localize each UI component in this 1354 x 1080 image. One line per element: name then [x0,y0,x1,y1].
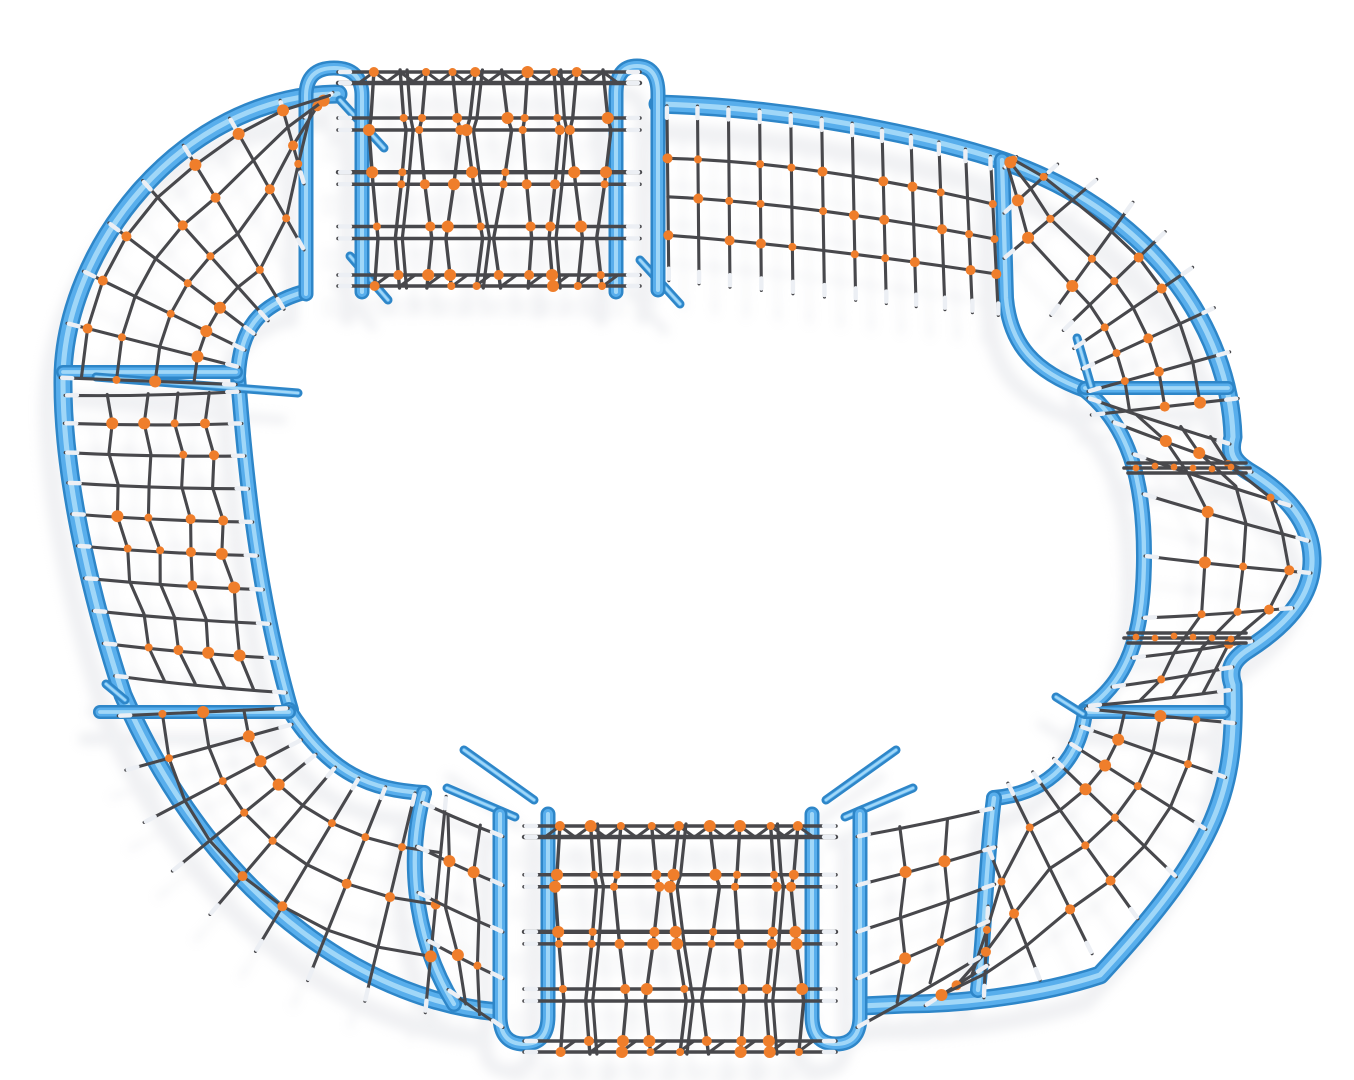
connector-dot [202,647,214,659]
connector-dot [206,252,214,260]
connector-dot [400,114,408,122]
connector-dot [693,194,703,204]
connector-dot [613,871,621,879]
connector-dot [397,180,405,188]
connector-dot [277,901,287,911]
connector-dot [1088,255,1096,263]
ferrule-tip [274,692,284,693]
connector-dot [664,881,676,893]
rope-line [791,113,793,293]
connector-dot [670,926,682,938]
connector-dot [328,819,336,827]
connector-dot [373,222,381,230]
connector-dot [1152,635,1159,642]
connector-dot [602,112,614,124]
connector-dot [938,855,950,867]
connector-dot [770,871,778,879]
connector-dot [369,67,379,77]
ferrule-tip [426,1001,427,1011]
connector-dot [425,221,435,231]
connector-dot [216,548,228,560]
ferrule-tip [983,885,992,888]
connector-dot [597,271,605,279]
ferrule-tip [1147,556,1157,557]
connector-dot [851,250,859,258]
rope-line [555,824,564,1054]
ferrule-tip [1126,204,1132,212]
connector-dot [550,179,560,189]
connector-dot [452,949,464,961]
connector-dot [1228,464,1235,471]
connector-dot [1113,349,1121,357]
ferrule-tip [1090,399,1100,402]
connector-dot [671,938,683,950]
connector-dot [209,450,219,460]
connector-dot [617,1035,629,1047]
connector-dot [620,984,630,994]
connector-dot [789,926,801,938]
connector-dot [442,220,454,232]
connector-dot [425,950,437,962]
ferrule-tip [174,863,182,869]
connector-dot [565,125,575,135]
connector-dot [186,514,196,524]
connector-dot [393,270,403,280]
ferrule-tip [301,172,304,182]
connector-dot [1066,280,1078,292]
connector-dot [184,279,192,287]
connector-dot [556,1047,566,1057]
connector-dot [145,643,153,651]
ferrule-tip [69,324,79,326]
ferrule-tip [1183,268,1191,274]
connector-dot [200,325,212,337]
connector-dot [1239,563,1247,571]
connector-dot [643,1035,655,1047]
connector-dot [452,113,462,123]
connector-dot [589,928,597,936]
ferrule-tip [1219,690,1229,691]
connector-dot [756,160,764,168]
connector-dot [288,140,298,150]
connector-dot [422,269,434,281]
ferrule-tip [246,555,256,556]
ferrule-tip [128,767,138,770]
connector-dot [189,159,201,171]
connector-dot [555,821,565,831]
connector-dot [702,1036,712,1046]
connector-dot [601,180,609,188]
connector-dot [936,989,948,1001]
connector-dot [674,821,684,831]
connector-dot [768,927,778,937]
connector-dot [1171,464,1178,471]
connector-dot [733,871,741,879]
connector-dot [1099,759,1111,771]
connector-dot [214,302,226,314]
connector-dot [173,645,183,655]
connector-dot [553,114,561,122]
connector-dot [1190,634,1197,641]
connector-dot [1192,715,1200,723]
connector-dot [590,871,598,879]
connector-dot [501,168,509,176]
connector-dot [551,869,563,881]
ferrule-tip [859,882,869,885]
ferrule-tip [87,578,97,579]
connector-dot [615,939,625,949]
ferrule-tip [1168,869,1175,876]
connector-dot [418,114,426,122]
connector-dot [881,254,889,262]
connector-dot [1193,447,1205,459]
ferrule-tip [1221,667,1231,669]
connector-dot [796,983,808,995]
connector-dot [466,166,478,178]
connector-dot [1022,232,1034,244]
ferrule-tip [1145,495,1155,498]
connector-dot [1079,783,1091,795]
connector-dot [1106,876,1116,886]
connector-dot [522,66,534,78]
ferrule-tip [280,725,290,728]
connector-dot [1190,465,1197,472]
scene-svg [0,0,1354,1080]
connector-dot [273,779,285,791]
connector-dot [772,882,782,892]
connector-dot [547,280,559,292]
connector-dot [725,197,733,205]
connector-dot [710,869,722,881]
ferrule-tip [307,756,315,762]
connector-dot [361,833,369,841]
connector-dot [1209,466,1216,473]
rope-line [523,70,532,288]
connector-dot [200,418,210,428]
connector-dot [233,128,245,140]
connector-dot [764,1046,776,1058]
connector-dot [708,940,716,948]
connector-dot [937,188,945,196]
connector-dot [1121,377,1129,385]
connector-dot [756,239,766,249]
connector-dot [269,837,277,845]
ferrule-tip [1049,165,1056,172]
connector-dot [555,940,563,948]
connector-dot [550,68,558,76]
connector-dot [228,582,240,594]
ferrule-tip [445,798,446,808]
connector-dot [219,777,227,785]
connector-dot [415,126,423,134]
connector-dot [470,67,480,77]
connector-dot [1198,610,1206,618]
connector-dot [179,451,187,459]
ferrule-tip [365,990,367,1000]
connector-dot [788,243,796,251]
connector-dot [149,375,161,387]
connector-dot [709,928,717,936]
connector-dot [651,870,661,880]
connector-dot [734,939,744,949]
connector-dot [1154,710,1166,722]
ferrule-tip [1226,399,1236,400]
rope-line [64,423,242,425]
tube-outline [812,814,860,1044]
connector-dot [186,547,196,557]
connector-dot [1202,506,1214,518]
connector-dot [1154,367,1164,377]
connector-dot [178,220,188,230]
connector-dot [648,822,656,830]
ferrule-tip [291,741,300,746]
connector-dot [937,938,945,946]
connector-dot [735,1046,747,1058]
connector-dot [473,962,481,970]
connector-dot [444,269,456,281]
connector-dot [1143,333,1153,343]
connector-dot [342,879,352,889]
ferrule-tip [1093,414,1103,415]
connector-dot [983,926,991,934]
ferrule-tip [1131,909,1137,917]
connector-dot [763,1035,775,1047]
connector-dot [1134,782,1142,790]
connector-dot [616,1046,628,1058]
connector-dot [243,730,255,742]
connector-dot [568,166,580,178]
connector-dot [680,985,688,993]
connector-dot [585,820,597,832]
connector-dot [256,266,264,274]
ferrule-tip [1280,502,1289,505]
connector-dot [575,220,587,232]
connector-dot [158,710,166,718]
connector-dot [522,179,532,189]
connector-dot [118,333,126,341]
connector-dot [460,124,472,136]
connector-dot [254,755,266,767]
connector-dot [646,1048,654,1056]
connector-dot [1160,435,1172,447]
connector-dot [138,417,150,429]
connector-dot [363,124,375,136]
connector-dot [156,546,164,554]
ferrule-tip [1088,181,1096,187]
connector-dot [473,282,481,290]
connector-dot [385,892,395,902]
connector-dot [1133,465,1140,472]
connector-dot [1209,635,1216,642]
connector-dot [1160,402,1170,412]
connector-dot [1040,173,1048,181]
connector-dot [112,376,120,384]
connector-dot [370,281,380,291]
connector-dot [294,160,302,168]
connector-dot [1110,277,1118,285]
connector-dot [676,1048,684,1056]
ferrule-tip [251,589,261,590]
ferrule-tip [984,848,994,851]
connector-dot [991,235,999,243]
connector-dot [1234,608,1242,616]
connector-dot [908,182,918,192]
ferrule-tip [981,809,991,811]
connector-dot [449,68,457,76]
connector-dot [1134,252,1144,262]
playground-climber-render [0,0,1354,1080]
ferrule-tip [1218,352,1228,355]
ferrule-tip [1299,572,1309,573]
connector-dot [849,210,859,220]
connector-dot [789,870,799,880]
connector-dot [663,230,673,240]
connector-dot [366,166,378,178]
connector-dot [793,821,803,831]
connector-dot [144,514,152,522]
ferrule-tip [105,644,115,645]
ferrule-tip [328,769,334,777]
connector-dot [1264,605,1274,615]
connector-dot [1065,904,1075,914]
connector-dot [731,883,739,891]
connector-dot [526,221,536,231]
ferrule-tip [1088,709,1098,710]
connector-dot [477,222,485,230]
connector-dot [521,114,529,122]
ferrule-tip [1223,722,1233,723]
connector-dot [187,580,197,590]
connector-dot [1267,494,1275,502]
connector-dot [83,324,93,334]
connector-dot [98,276,108,286]
connector-dot [878,176,888,186]
connector-dot [165,754,173,762]
connector-dot [559,985,567,993]
connector-dot [767,939,777,949]
ferrule-tip [1214,773,1223,776]
connector-dot [420,179,430,189]
connector-dot [555,125,565,135]
connector-dot [910,257,920,267]
connector-dot [786,882,796,892]
connector-dot [238,871,248,881]
connector-dot [545,221,555,231]
rope-line [175,393,225,686]
connector-dot [265,184,275,194]
connector-dot [704,820,716,832]
connector-dot [965,230,973,238]
connector-dot [818,167,828,177]
connector-dot [111,510,123,522]
connector-dot [795,1048,803,1056]
ferrule-tip [79,546,89,547]
ferrule-tip [211,905,217,913]
connector-dot [1199,556,1211,568]
connector-dot [494,270,504,280]
connector-dot [900,866,912,878]
connector-dot [552,926,564,938]
connector-dot [277,104,289,116]
connector-dot [1157,283,1167,293]
ferrule-tip [227,364,237,366]
connector-dot [757,200,765,208]
connector-dot [981,947,991,957]
ferrule-tip [1134,656,1144,657]
connector-dot [546,269,558,281]
connector-dot [1112,734,1124,746]
ferrule-tip [258,623,268,624]
ferrule-tip [1145,617,1155,618]
connector-dot [738,984,748,994]
connector-dot [211,193,221,203]
connector-dot [167,310,175,318]
connector-dot [588,940,596,948]
connector-dot [767,822,775,830]
connector-dot [1133,634,1140,641]
connector-dot [600,166,612,178]
connector-dot [1009,909,1019,919]
connector-dot [734,820,746,832]
ferrule-tip [117,676,127,677]
connector-dot [500,180,508,188]
connector-dot [655,882,665,892]
connector-dot [989,200,997,208]
connector-dot [736,1036,746,1046]
ferrule-tip [1036,969,1040,978]
connector-dot [1111,814,1119,822]
connector-dot [1009,156,1017,164]
connector-dot [937,224,947,234]
ferrule-tip [859,928,868,931]
ferrule-tip [95,611,105,612]
connector-dot [791,938,803,950]
connector-dot [282,214,290,222]
connector-dot [610,883,618,891]
connector-dot [447,282,455,290]
connector-dot [448,178,460,190]
connector-dot [991,269,1001,279]
connector-dot [1284,565,1294,575]
ferrule-tip [1090,388,1100,391]
ferrule-tip [859,834,869,836]
connector-dot [584,1036,594,1046]
connector-dot [443,855,455,867]
connector-dot [197,706,209,718]
connector-dot [694,155,702,163]
ferrule-tip [412,795,414,805]
connector-dot [572,67,582,77]
connector-dot [234,649,246,661]
connector-dot [1026,823,1034,831]
connector-dot [124,545,132,553]
connector-dot [725,235,735,245]
connector-dot [668,869,680,881]
connector-dot [574,282,582,290]
connector-dot [121,231,131,241]
connector-dot [1184,760,1192,768]
connector-dot [1101,323,1109,331]
connector-dot [641,983,653,995]
connector-dot [617,822,625,830]
connector-dot [218,516,228,526]
rope-line [667,106,669,281]
connector-dot [171,419,179,427]
ferrule-tip [1135,455,1144,458]
connector-dot [966,265,976,275]
connector-dot [1194,397,1206,409]
ferrule-tip [1297,538,1307,541]
